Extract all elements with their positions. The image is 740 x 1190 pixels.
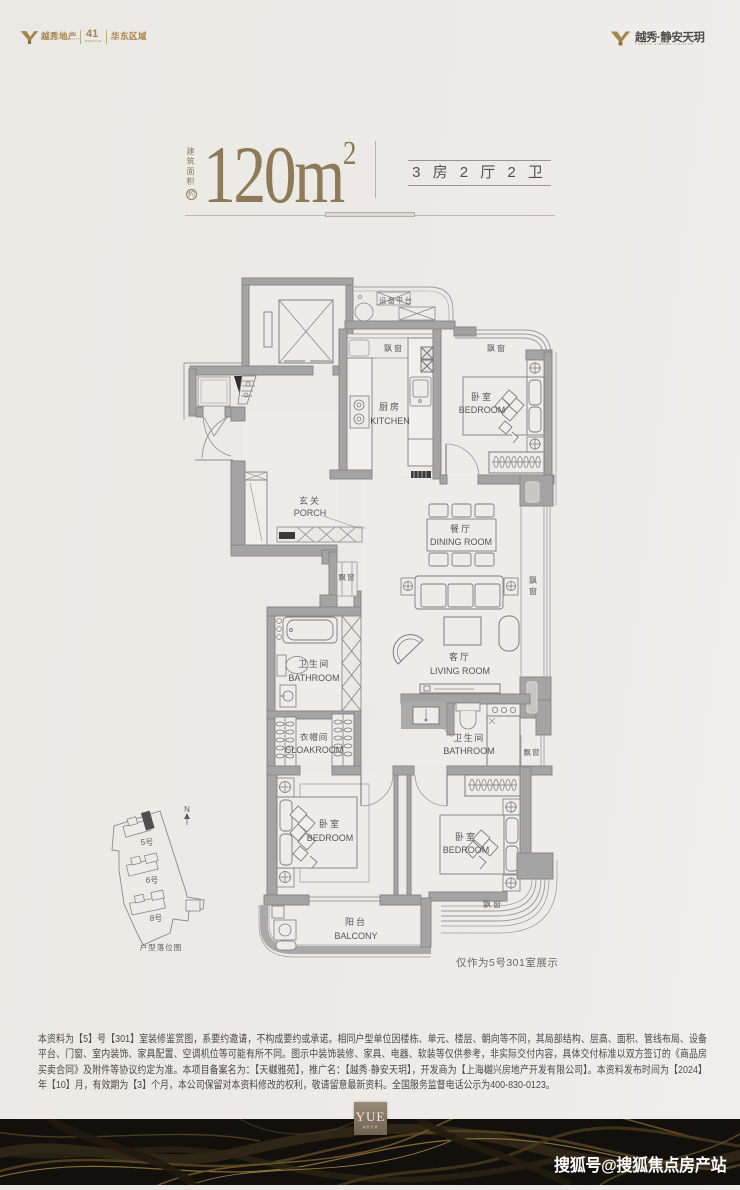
svg-text:餐厅: 餐厅: [450, 523, 472, 534]
svg-text:飘窗: 飘窗: [524, 747, 541, 757]
svg-text:卧室: 卧室: [471, 391, 493, 402]
svg-text:BEDROOM: BEDROOM: [307, 833, 354, 843]
svg-text:飘窗: 飘窗: [487, 343, 507, 353]
svg-text:户型落位图: 户型落位图: [140, 942, 183, 952]
svg-text:厨房: 厨房: [379, 401, 401, 412]
svg-text:飘: 飘: [529, 576, 537, 585]
svg-text:8号: 8号: [150, 914, 162, 923]
svg-text:N: N: [184, 805, 190, 814]
svg-text:玄关: 玄关: [299, 495, 321, 506]
svg-text:KITCHEN: KITCHEN: [370, 416, 410, 426]
svg-text:BEDROOM: BEDROOM: [459, 405, 506, 415]
svg-text:CLOAKROOM: CLOAKROOM: [285, 745, 344, 755]
svg-text:客厅: 客厅: [449, 651, 471, 662]
svg-text:PORCH: PORCH: [294, 508, 327, 518]
svg-text:卧室: 卧室: [455, 831, 477, 842]
svg-text:5号: 5号: [141, 838, 153, 847]
svg-text:DINING ROOM: DINING ROOM: [430, 537, 492, 547]
svg-text:卫生间: 卫生间: [453, 732, 485, 743]
svg-text:卧室: 卧室: [319, 818, 341, 829]
svg-text:阳台: 阳台: [345, 916, 367, 927]
svg-text:衣帽间: 衣帽间: [300, 732, 329, 742]
svg-text:飘窗: 飘窗: [339, 572, 356, 582]
svg-text:飘窗: 飘窗: [384, 343, 404, 353]
svg-text:BALCONY: BALCONY: [334, 931, 377, 941]
svg-text:BEDROOM: BEDROOM: [443, 845, 490, 855]
svg-text:BATHROOM: BATHROOM: [443, 746, 494, 756]
svg-text:窗: 窗: [529, 586, 537, 596]
svg-text:6号: 6号: [146, 876, 158, 885]
svg-text:飘窗: 飘窗: [483, 899, 503, 909]
svg-text:LIVING ROOM: LIVING ROOM: [430, 666, 490, 676]
svg-text:卫生间: 卫生间: [298, 658, 330, 669]
svg-text:设备平台: 设备平台: [379, 295, 413, 305]
svg-text:BATHROOM: BATHROOM: [288, 673, 339, 683]
